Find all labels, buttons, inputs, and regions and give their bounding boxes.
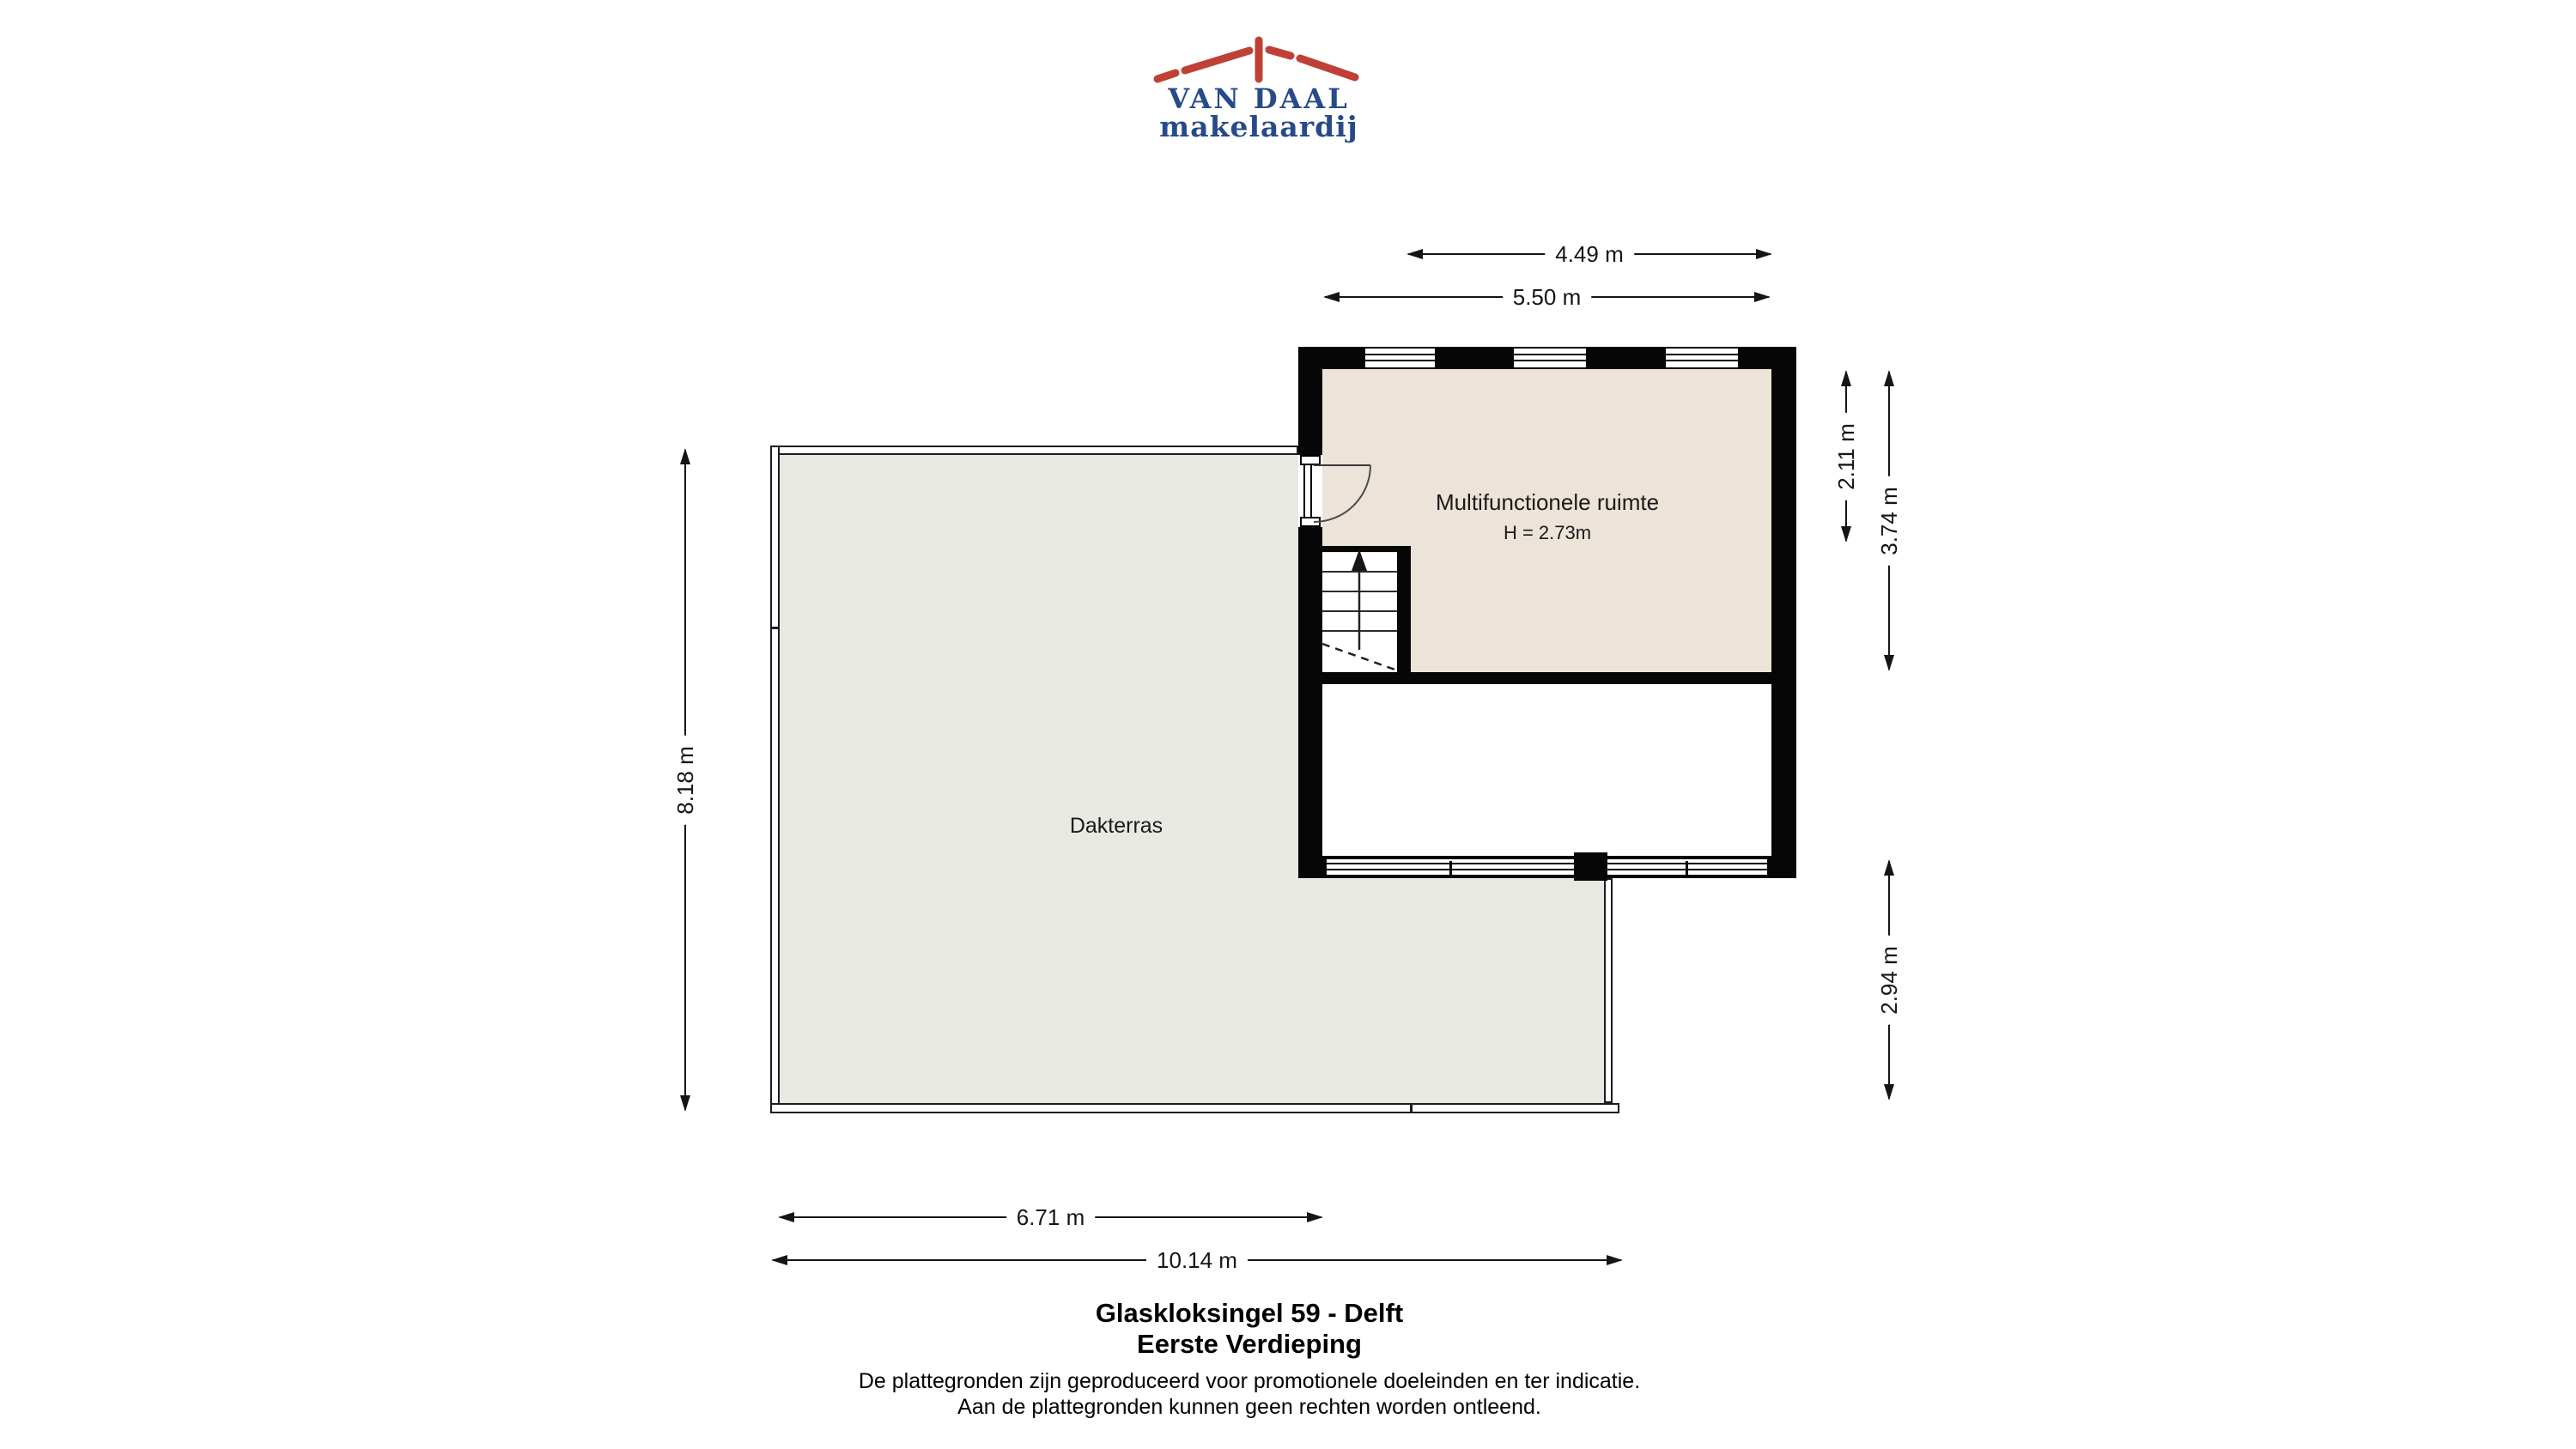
logo-subtitle: makelaardij xyxy=(1151,110,1367,143)
railing-seam-bottom xyxy=(1410,1103,1413,1113)
dimension-label: 8.18 m xyxy=(672,736,698,825)
arrowhead-left-icon xyxy=(1323,292,1340,302)
stair-treads xyxy=(1322,553,1397,649)
dimension-label: 3.74 m xyxy=(1876,476,1902,566)
room-height-label: H = 2.73m xyxy=(1376,522,1719,544)
glazing-joint xyxy=(1686,861,1688,876)
window-top-1 xyxy=(1365,347,1435,369)
arrowhead-down-icon xyxy=(1841,526,1851,543)
window-glazing xyxy=(1514,354,1586,361)
wall-room-bottom xyxy=(1298,672,1771,684)
terrace-railing-bottom xyxy=(770,1103,1619,1113)
arrowhead-down-icon xyxy=(1884,1084,1894,1100)
dakterras-floor xyxy=(780,455,1298,1103)
terrace-railing-left xyxy=(770,446,780,1113)
arrowhead-up-icon xyxy=(1884,370,1894,386)
window-top-2 xyxy=(1514,347,1586,369)
footer-spacer xyxy=(391,1360,2108,1368)
door-jamb-bottom xyxy=(1300,517,1321,527)
footer-address: Glaskloksingel 59 - Delft xyxy=(391,1298,2108,1329)
arrowhead-down-icon xyxy=(1884,655,1894,671)
wall-lower-pillar xyxy=(1574,852,1607,881)
glazing-joint xyxy=(1449,861,1452,876)
logo-roof-icon xyxy=(1151,33,1367,84)
arrowhead-right-icon xyxy=(1607,1255,1623,1265)
railing-seam-left xyxy=(770,627,780,629)
door-jamb-top xyxy=(1300,455,1321,465)
dimension-label: 5.50 m xyxy=(1503,284,1592,310)
dimension-label: 10.14 m xyxy=(1146,1247,1248,1273)
footer: Glaskloksingel 59 - Delft Eerste Verdiep… xyxy=(391,1298,2108,1420)
window-top-3 xyxy=(1666,347,1738,369)
window-glazing xyxy=(1365,354,1435,361)
logo: VAN DAAL makelaardij xyxy=(1151,33,1367,137)
dimension-label: 4.49 m xyxy=(1545,241,1634,267)
terrace-edge-right xyxy=(1604,878,1613,1103)
footer-disclaimer-line2: Aan de plattegronden kunnen geen rechten… xyxy=(391,1394,2108,1420)
arrowhead-right-icon xyxy=(1307,1212,1323,1222)
arrowhead-right-icon xyxy=(1756,249,1772,259)
arrowhead-up-icon xyxy=(1841,370,1851,386)
arrowhead-up-icon xyxy=(1884,859,1894,876)
window-lower-left xyxy=(1327,858,1574,876)
arrowhead-up-icon xyxy=(680,448,690,464)
arrowhead-left-icon xyxy=(778,1212,794,1222)
wall-left-lower xyxy=(1298,527,1322,878)
arrowhead-right-icon xyxy=(1754,292,1771,302)
stair-side-wall xyxy=(1397,546,1411,672)
arrowhead-left-icon xyxy=(771,1255,787,1265)
window-glazing xyxy=(1666,354,1738,361)
arrowhead-down-icon xyxy=(680,1095,690,1112)
dimension-label: 2.94 m xyxy=(1876,936,1902,1025)
wall-left-upper xyxy=(1298,347,1322,455)
terrace-railing-top xyxy=(770,446,1298,455)
footer-floor-name: Eerste Verdieping xyxy=(391,1329,2108,1360)
window-lower-right xyxy=(1607,858,1767,876)
dakterras-floor-extension xyxy=(1298,878,1604,1103)
door-panel xyxy=(1303,465,1312,517)
floorplan-page: VAN DAAL makelaardij xyxy=(0,0,2576,1449)
room-label-multifunctionele-ruimte: Multifunctionele ruimte xyxy=(1376,489,1719,516)
arrowhead-left-icon xyxy=(1406,249,1423,259)
footer-disclaimer-line1: De plattegronden zijn geproduceerd voor … xyxy=(391,1368,2108,1394)
dimension-label: 2.11 m xyxy=(1833,413,1859,500)
wall-right xyxy=(1771,347,1796,878)
room-label-dakterras: Dakterras xyxy=(987,814,1245,839)
dimension-label: 6.71 m xyxy=(1006,1204,1096,1230)
